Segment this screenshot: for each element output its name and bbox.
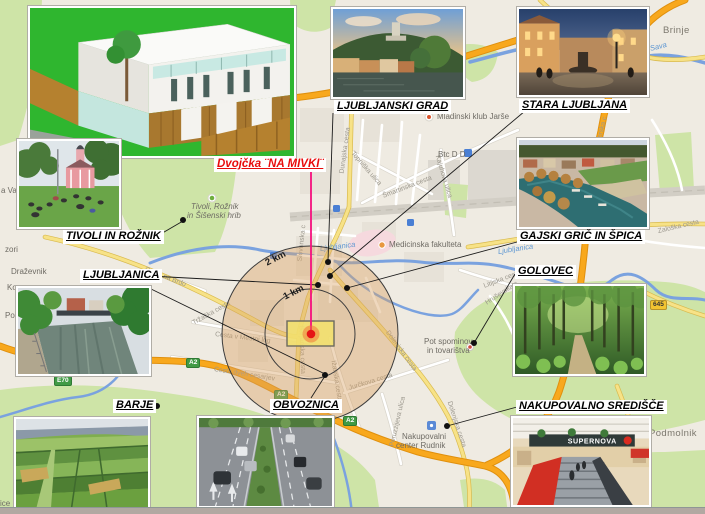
place-label: in Šišenski hrib	[187, 211, 241, 220]
place-label: Brinje	[663, 26, 690, 35]
callout-gajski-gric-spica: GAJSKI GRIČ IN ŠPICA	[517, 230, 645, 244]
photo-building-render	[28, 6, 296, 158]
photo-ljubljanica	[16, 286, 151, 376]
motorway-shield-e70: E70	[54, 376, 72, 386]
callout-ljubljanica: LJUBLJANICA	[80, 269, 162, 283]
callout-ljubljanski-grad: LJUBLJANSKI GRAD	[334, 100, 451, 114]
photo-stara-ljubljana	[517, 7, 649, 97]
mall-logo-dot	[624, 436, 632, 444]
place-label: Medicinska fakulteta	[389, 240, 461, 249]
place-label: in tovarištva	[427, 346, 470, 355]
callout-project-dvojcka-na-mivki: Dvojčka ¨NA MIVKI¨	[214, 158, 326, 172]
location-map-canvas: Mladinski klub Jarše Btc D D Medicinska …	[0, 0, 705, 514]
place-label: Tivoli, Rožnik	[191, 202, 239, 211]
callout-barje: BARJE	[113, 399, 156, 413]
shopping-icon	[427, 421, 436, 430]
place-label: Draževnik	[11, 267, 47, 276]
motorway-shield-a2: A2	[343, 416, 357, 426]
place-label: zori	[5, 245, 18, 254]
callout-obvoznica: OBVOZNICA	[270, 399, 342, 413]
photo-golovec	[513, 284, 646, 376]
mall-sign-text: SUPERNOVA	[568, 438, 617, 446]
place-label: Pot spominov	[424, 337, 472, 346]
motorway-shield-a2: A2	[186, 358, 200, 368]
callout-stara-ljubljana: STARA LJUBLJANA	[519, 99, 630, 113]
photo-ljubljanski-grad	[331, 7, 465, 99]
photo-obvoznica	[197, 416, 334, 508]
photo-barje	[14, 417, 150, 509]
place-label: Nakupovalni	[402, 432, 446, 441]
callout-golovec: GOLOVEC	[515, 265, 576, 279]
place-label: Btc D D	[438, 150, 466, 159]
photo-gajski-gric-spica	[517, 138, 649, 229]
bottom-edge-strip	[0, 507, 705, 514]
place-label: center Rudnik	[396, 441, 445, 450]
road-shield-645: 645	[650, 300, 667, 310]
park-poi-icon	[208, 194, 216, 202]
photo-tivoli-roznik	[17, 139, 121, 229]
callout-nakupovalno-sredisce: NAKUPOVALNO SREDIŠČE	[516, 400, 667, 414]
photo-nakupovalno-sredisce: SUPERNOVA	[511, 416, 651, 507]
place-label: a Va	[1, 186, 17, 195]
place-label: Podmolnik	[649, 429, 697, 438]
callout-tivoli-roznik: TIVOLI IN ROŽNIK	[63, 230, 164, 244]
